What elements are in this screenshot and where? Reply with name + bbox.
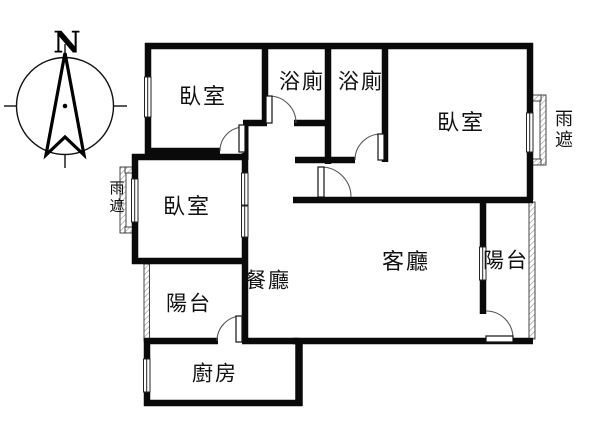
room-label-bedroom-left: 臥室 <box>163 197 211 219</box>
floor-plan: N 臥室 浴廁 浴廁 臥室 臥室 餐廳 客廳 陽台 陽台 廚房 雨遮 雨遮 <box>0 0 600 434</box>
room-label-balcony-right: 陽台 <box>483 251 529 272</box>
window <box>527 113 534 152</box>
annotation-rain-shelter-left: 雨遮 <box>109 180 124 216</box>
balcony-right-railing <box>529 202 535 339</box>
sliding-door <box>242 173 249 237</box>
rain-shelter-right-hatch <box>532 95 546 165</box>
window <box>132 179 139 222</box>
door-swing-arc <box>355 134 381 160</box>
room-label-bathroom-1: 浴廁 <box>279 72 325 93</box>
room-label-dining: 餐廳 <box>245 271 291 292</box>
door-swing-arc <box>269 96 296 123</box>
door-leaf <box>266 96 272 123</box>
door-leaf <box>236 316 242 342</box>
compass-north-label: N <box>53 26 80 61</box>
room-label-kitchen: 廚房 <box>192 364 238 385</box>
door-leaf <box>378 134 384 160</box>
room-label-bathroom-2: 浴廁 <box>338 72 384 93</box>
balcony-left-railing <box>144 264 150 341</box>
annotation-rain-shelter-right: 雨遮 <box>553 109 571 151</box>
room-label-bedroom-right: 臥室 <box>437 113 485 135</box>
door-leaf <box>318 167 324 197</box>
door-leaf <box>239 125 245 152</box>
door-swing-arc <box>486 311 513 338</box>
floor-plan-drawing <box>0 0 600 434</box>
room-label-bedroom-top-left: 臥室 <box>179 87 227 109</box>
window <box>144 359 151 392</box>
window <box>145 77 152 117</box>
door-leaf <box>486 336 513 342</box>
room-label-living: 客廳 <box>382 252 430 274</box>
room-label-balcony-left: 陽台 <box>166 294 212 315</box>
compass-north-icon <box>4 44 127 168</box>
door-swing-arc <box>321 167 351 197</box>
balcony-railings <box>144 202 535 341</box>
compass-center-dot <box>63 104 68 109</box>
